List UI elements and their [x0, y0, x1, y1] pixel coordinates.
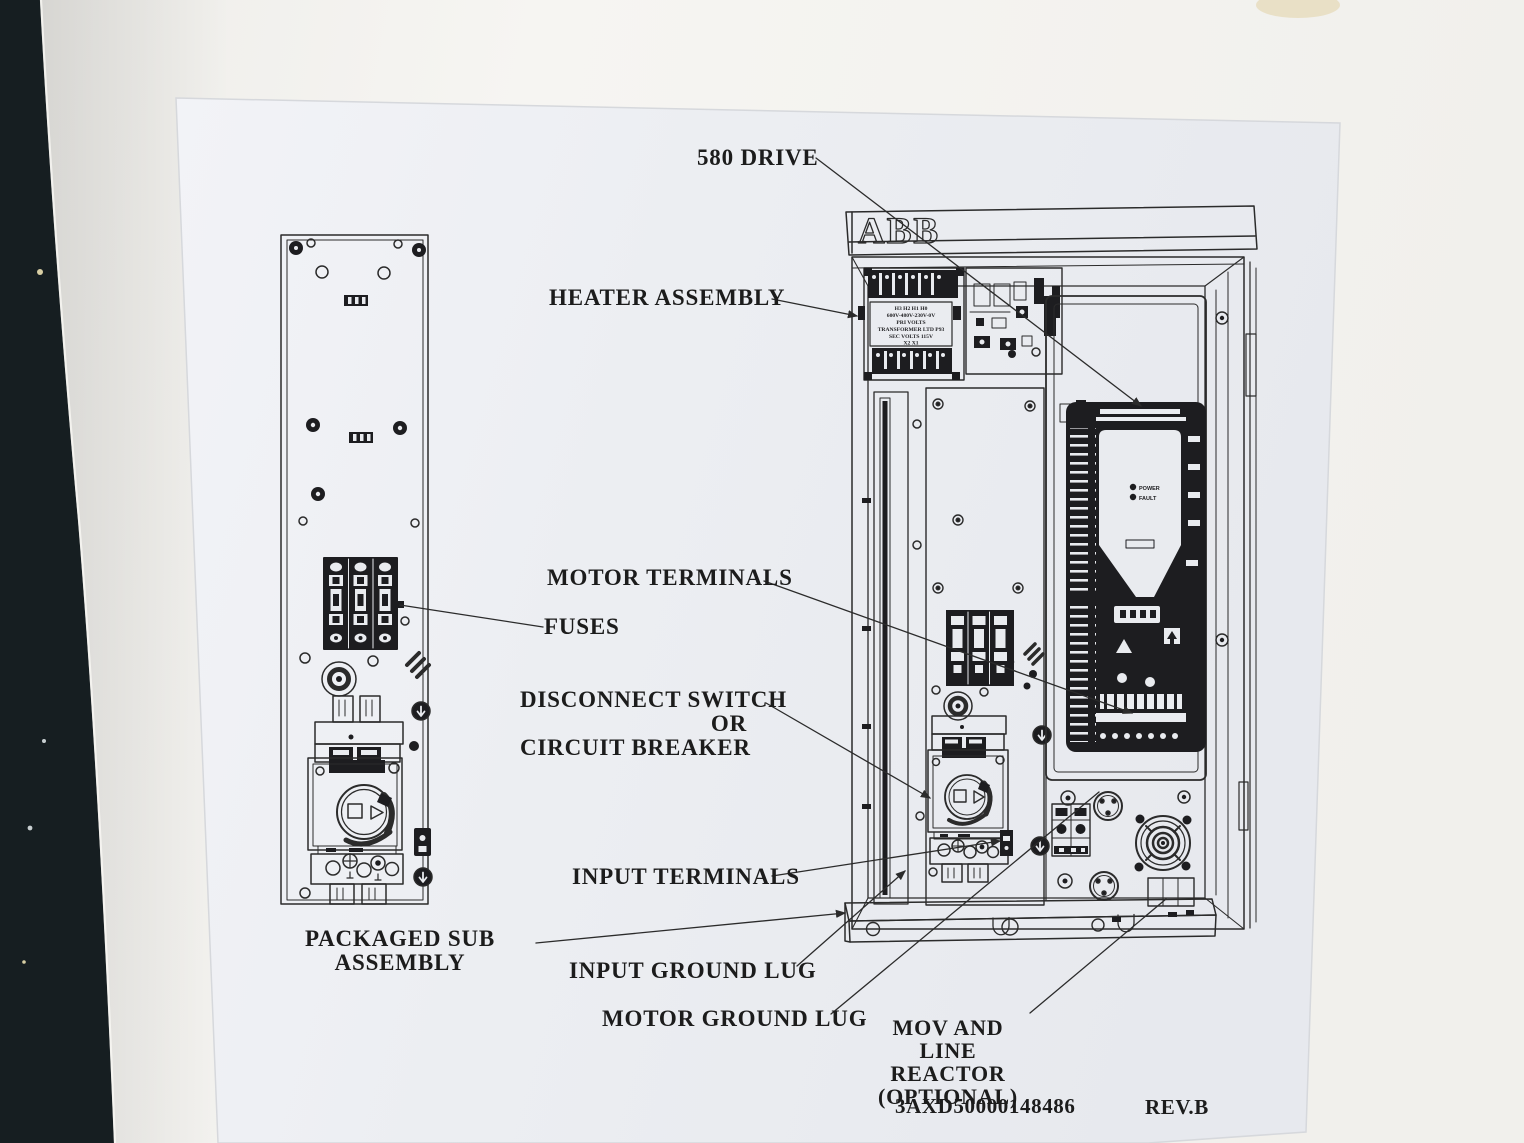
callout-mov-line2: LINE REACTOR: [868, 1039, 1028, 1085]
abb-logo-text: ABB: [858, 211, 940, 252]
vent-slot: [344, 295, 368, 306]
callout-packaged-line2: ASSEMBLY: [288, 951, 512, 975]
svg-text:SEC VOLTS 115V: SEC VOLTS 115V: [889, 334, 933, 340]
svg-text:PRI VOLTS: PRI VOLTS: [896, 320, 925, 326]
led-power-label: POWER: [1139, 486, 1160, 492]
callout-packaged-line1: PACKAGED SUB: [288, 927, 512, 951]
heatsink-fins: [1070, 428, 1096, 592]
callout-disconnect-line3: CIRCUIT BREAKER: [520, 736, 765, 760]
input-terminal-block: [1000, 830, 1013, 856]
cable-bushing: [322, 662, 356, 696]
drive-module: POWER FAULT: [1066, 402, 1206, 752]
svg-text:X2 X1: X2 X1: [903, 341, 918, 347]
callout-heater-assembly: HEATER ASSEMBLY: [549, 286, 785, 310]
svg-text:H3 H2 H1 H0: H3 H2 H1 H0: [895, 306, 928, 312]
callout-motor-ground-lug: MOTOR GROUND LUG: [602, 1007, 867, 1031]
drive-terminals: [1100, 694, 1182, 709]
callout-580-drive: 580 DRIVE: [697, 146, 819, 170]
svg-text:TRANSFORMER LTD P93: TRANSFORMER LTD P93: [878, 327, 945, 333]
fuse-block: [323, 557, 398, 650]
callout-disconnect-line1: DISCONNECT SWITCH: [520, 688, 765, 712]
callout-mov-line1: MOV AND: [868, 1016, 1028, 1039]
svg-text:600V-480V-230V-0V: 600V-480V-230V-0V: [887, 313, 935, 319]
callout-disconnect-line2: OR: [520, 712, 765, 736]
callout-input-ground-lug: INPUT GROUND LUG: [569, 959, 817, 983]
led-fault-label: FAULT: [1139, 496, 1157, 502]
callout-disconnect-switch: DISCONNECT SWITCH OR CIRCUIT BREAKER: [520, 688, 765, 760]
photo-of-diagram-sheet: ABB H3 H: [0, 0, 1524, 1143]
revision: REV.B: [1145, 1095, 1209, 1120]
callout-motor-terminals: MOTOR TERMINALS: [547, 566, 793, 590]
callout-fuses: FUSES: [544, 615, 620, 639]
callout-packaged-sub-assembly: PACKAGED SUB ASSEMBLY: [288, 927, 512, 975]
callout-input-terminals: INPUT TERMINALS: [572, 865, 800, 889]
mov-terminal-block: [1052, 804, 1090, 856]
heatsink-fins: [1070, 600, 1096, 742]
doc-number: 3AXD50000148486: [895, 1094, 1076, 1119]
vent-slot: [349, 432, 373, 443]
motor-terminal-block: [946, 610, 1014, 686]
